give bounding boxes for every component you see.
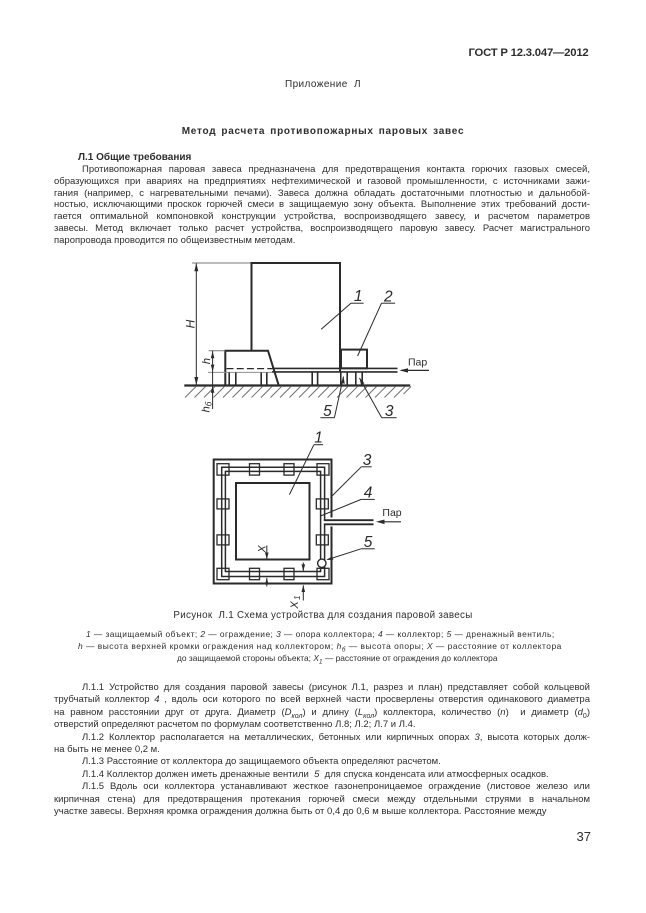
svg-text:Пар: Пар bbox=[382, 507, 401, 519]
svg-text:X1: X1 bbox=[289, 595, 302, 609]
svg-text:hб: hб bbox=[201, 401, 214, 412]
svg-text:h: h bbox=[201, 358, 213, 364]
svg-text:1: 1 bbox=[354, 288, 363, 305]
svg-text:1: 1 bbox=[314, 429, 323, 446]
svg-text:H: H bbox=[184, 319, 198, 328]
svg-text:Пар: Пар bbox=[408, 357, 427, 369]
svg-text:X: X bbox=[256, 545, 268, 554]
